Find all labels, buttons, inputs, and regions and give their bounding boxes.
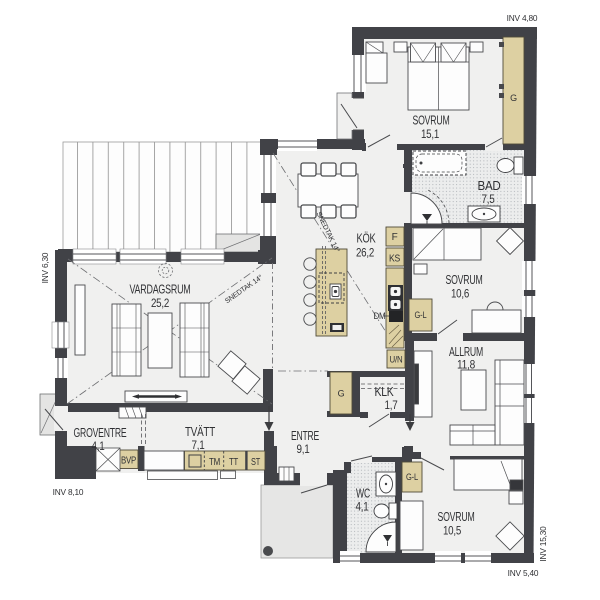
svg-text:9,1: 9,1	[297, 442, 311, 456]
svg-text:INV 6,30: INV 6,30	[40, 252, 50, 283]
svg-text:7,5: 7,5	[482, 192, 496, 206]
svg-text:11,8: 11,8	[457, 358, 476, 372]
svg-text:SOVRUM: SOVRUM	[446, 273, 483, 287]
svg-text:TVÄTT: TVÄTT	[185, 425, 216, 439]
svg-text:10,6: 10,6	[451, 287, 470, 301]
svg-text:F: F	[392, 232, 398, 243]
svg-text:KS: KS	[389, 254, 401, 265]
svg-text:G: G	[510, 93, 517, 103]
svg-text:INV 5,40: INV 5,40	[508, 568, 539, 578]
svg-text:INV 15,30: INV 15,30	[538, 526, 548, 562]
svg-text:TT: TT	[229, 457, 238, 468]
svg-text:ENTRE: ENTRE	[291, 429, 319, 443]
svg-text:INV 4,80: INV 4,80	[507, 13, 538, 23]
svg-text:ST: ST	[251, 457, 260, 468]
svg-text:KÖK: KÖK	[357, 232, 377, 246]
svg-text:4,1: 4,1	[356, 500, 370, 514]
svg-text:4,1: 4,1	[92, 439, 106, 453]
svg-text:G-L: G-L	[406, 472, 418, 482]
svg-text:BAD: BAD	[478, 179, 501, 193]
svg-text:G: G	[338, 389, 345, 399]
svg-text:VARDAGSRUM: VARDAGSRUM	[130, 283, 191, 297]
svg-text:U/N: U/N	[390, 355, 403, 365]
svg-text:15,1: 15,1	[421, 127, 440, 141]
svg-text:KLK: KLK	[375, 385, 395, 399]
svg-text:25,2: 25,2	[151, 296, 170, 310]
svg-text:10,5: 10,5	[443, 524, 462, 538]
svg-text:BVP: BVP	[121, 456, 136, 467]
svg-text:TM: TM	[209, 457, 220, 468]
svg-text:GROVENTRE: GROVENTRE	[74, 426, 127, 440]
svg-text:SOVRUM: SOVRUM	[413, 114, 450, 128]
svg-text:G-L: G-L	[415, 310, 427, 320]
svg-text:26,2: 26,2	[356, 246, 375, 260]
svg-text:SOVRUM: SOVRUM	[438, 510, 475, 524]
svg-text:DM: DM	[374, 311, 386, 321]
svg-text:WC: WC	[356, 487, 370, 501]
svg-text:INV 8,10: INV 8,10	[53, 487, 84, 497]
svg-text:1,7: 1,7	[385, 398, 399, 412]
svg-text:7,1: 7,1	[192, 438, 206, 452]
